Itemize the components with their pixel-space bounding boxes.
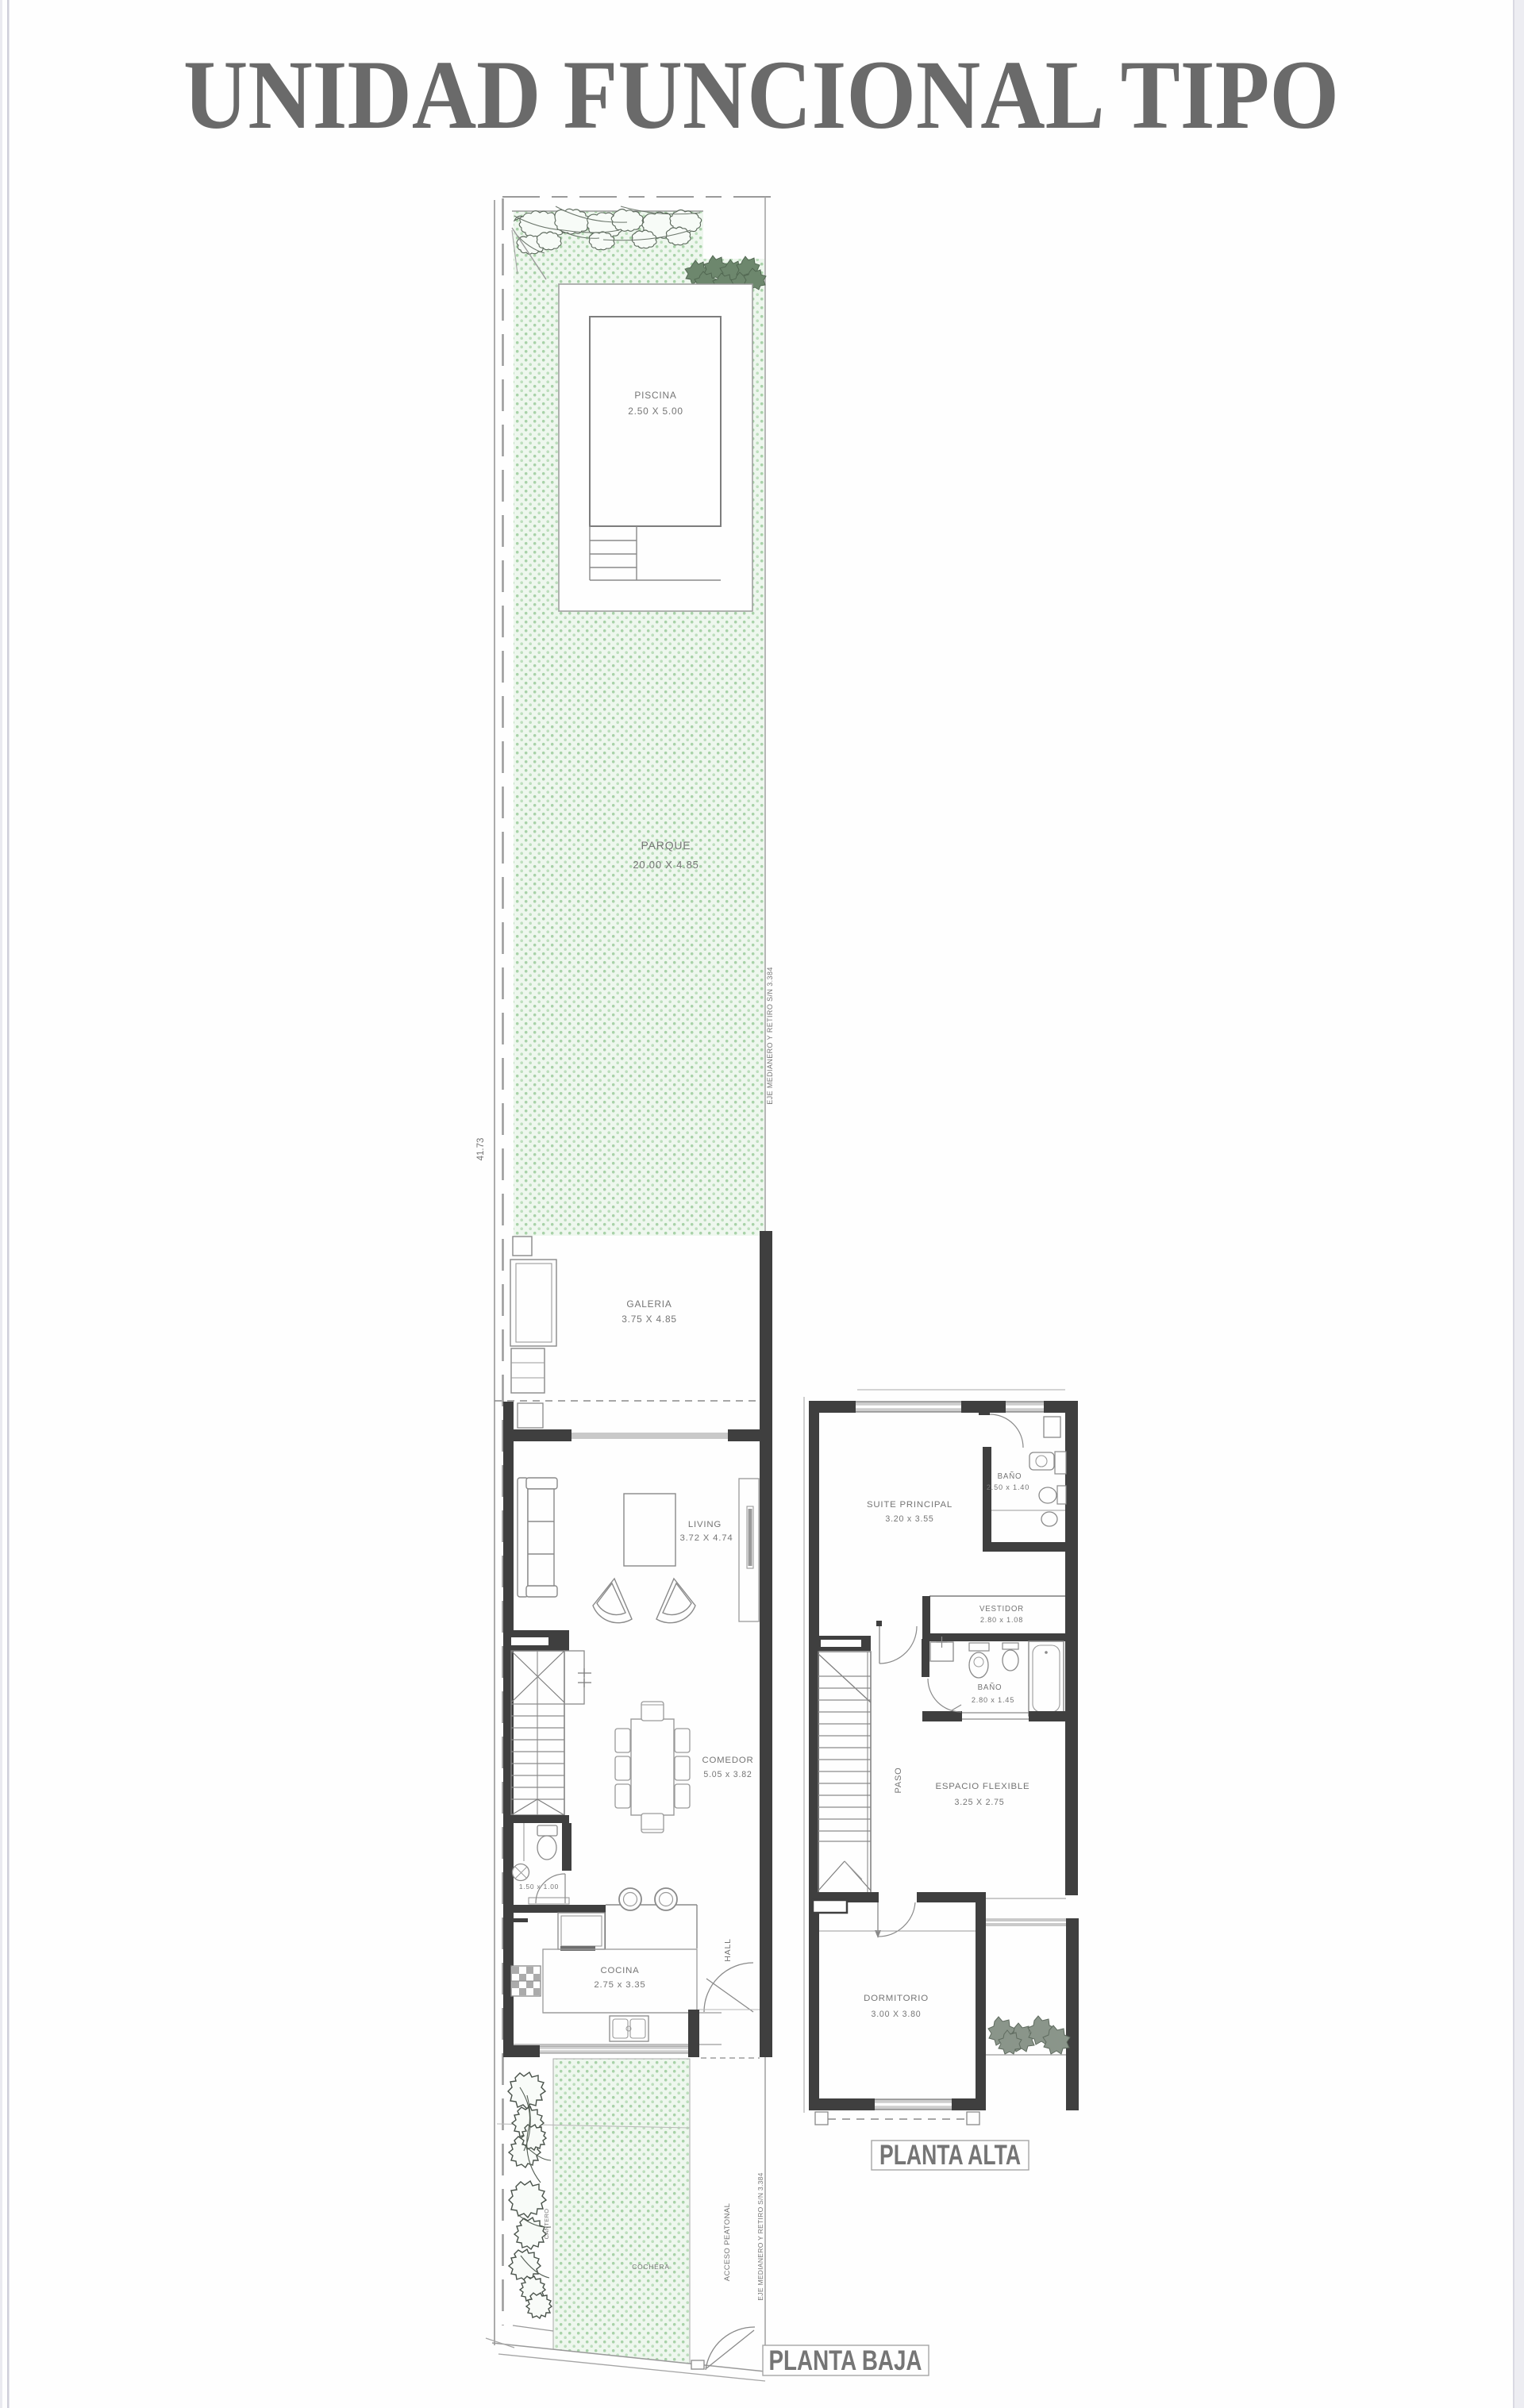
svg-text:ACCESO PEATONAL: ACCESO PEATONAL (723, 2203, 732, 2282)
svg-text:3.20 x 3.55: 3.20 x 3.55 (885, 1514, 933, 1524)
svg-text:2.75 x 3.35: 2.75 x 3.35 (594, 1980, 645, 1990)
svg-text:UNIDAD FUNCIONAL TIPO: UNIDAD FUNCIONAL TIPO (183, 40, 1339, 149)
svg-text:PISCINA: PISCINA (634, 390, 676, 401)
svg-text:2.50 X 5.00: 2.50 X 5.00 (628, 406, 683, 417)
svg-text:PARQUE: PARQUE (641, 839, 691, 852)
svg-text:COCINA: COCINA (600, 1966, 639, 1975)
svg-text:BAÑO: BAÑO (998, 1472, 1022, 1481)
svg-text:EJE MEDIANERO Y RETIRO S/N 3.3: EJE MEDIANERO Y RETIRO S/N 3.384 (766, 967, 774, 1105)
svg-text:CANTERO: CANTERO (543, 2209, 550, 2240)
svg-text:SUITE PRINCIPAL: SUITE PRINCIPAL (867, 1500, 952, 1510)
svg-text:LIVING: LIVING (688, 1520, 722, 1529)
svg-text:3.72 X 4.74: 3.72 X 4.74 (679, 1533, 733, 1543)
svg-text:EJE MEDIANERO Y RETIRO S/N 3.3: EJE MEDIANERO Y RETIRO S/N 3.384 (756, 2172, 764, 2300)
svg-text:PLANTA ALTA: PLANTA ALTA (879, 2140, 1021, 2171)
svg-text:VESTIDOR: VESTIDOR (979, 1605, 1024, 1614)
svg-text:2.50 x 1.40: 2.50 x 1.40 (987, 1483, 1029, 1491)
svg-text:3.75 X 4.85: 3.75 X 4.85 (622, 1314, 677, 1325)
svg-text:HALL: HALL (723, 1938, 733, 1961)
svg-text:41.73: 41.73 (476, 1138, 486, 1161)
svg-text:20.00 X 4.85: 20.00 X 4.85 (633, 859, 698, 871)
svg-text:DORMITORIO: DORMITORIO (864, 1994, 929, 2003)
svg-text:3.25 X 2.75: 3.25 X 2.75 (955, 1798, 1005, 1807)
svg-text:COCHERA: COCHERA (632, 2263, 669, 2271)
svg-text:2.80 x 1.08: 2.80 x 1.08 (980, 1616, 1023, 1624)
svg-text:PASO: PASO (894, 1768, 903, 1794)
svg-text:ESPACIO FLEXIBLE: ESPACIO FLEXIBLE (936, 1782, 1030, 1791)
svg-text:2.80 x 1.45: 2.80 x 1.45 (972, 1696, 1014, 1704)
svg-text:GALERIA: GALERIA (626, 1298, 672, 1310)
svg-text:BAÑO: BAÑO (978, 1683, 1003, 1692)
svg-text:PLANTA BAJA: PLANTA BAJA (769, 2345, 922, 2376)
svg-text:COMEDOR: COMEDOR (702, 1756, 753, 1765)
svg-text:3.00 X 3.80: 3.00 X 3.80 (872, 2010, 922, 2019)
svg-text:5.05 x 3.82: 5.05 x 3.82 (703, 1770, 752, 1779)
